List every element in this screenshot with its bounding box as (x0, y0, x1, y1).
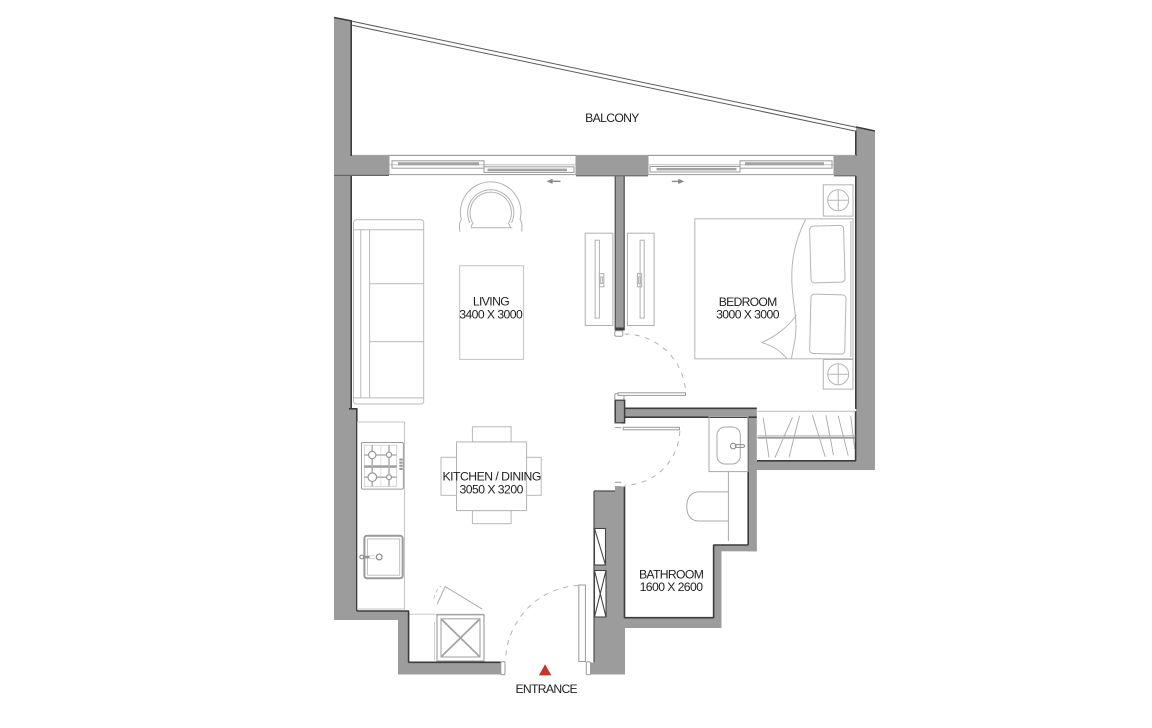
svg-text:1600 X 2600: 1600 X 2600 (640, 580, 704, 594)
svg-text:ENTRANCE: ENTRANCE (516, 682, 578, 696)
svg-text:KITCHEN / DINING: KITCHEN / DINING (443, 470, 542, 484)
svg-text:BALCONY: BALCONY (585, 111, 639, 125)
svg-text:3400 X 3000: 3400 X 3000 (459, 307, 523, 321)
svg-text:3000 X 3000: 3000 X 3000 (716, 308, 780, 322)
svg-text:3050 X 3200: 3050 X 3200 (459, 483, 523, 497)
